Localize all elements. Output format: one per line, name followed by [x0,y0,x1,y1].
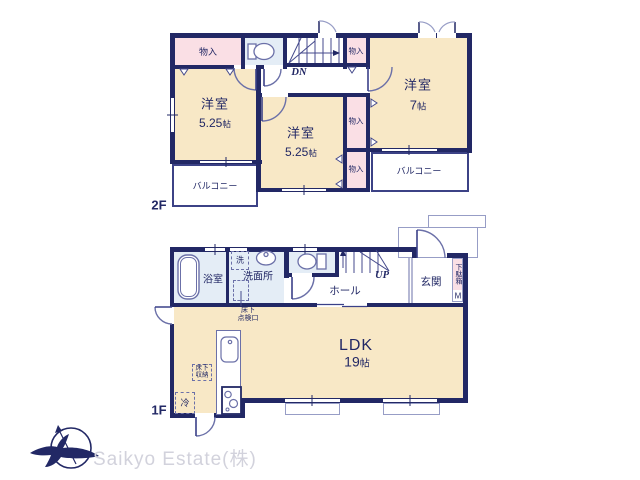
washing-machine-label: 洗 [236,255,244,264]
bathtub [178,255,199,299]
kitchen-sink [221,337,238,362]
ldk-name: LDK [339,337,373,355]
room-size: 5.25帖 [285,146,317,160]
stairs-2f [289,38,339,63]
ldk-sliding-door [317,305,367,307]
floor-plan: 2F 物入 物入 物入 物入 洋室 5.25帖 洋室 5.25帖 洋室 7帖 バ… [0,0,640,480]
entrance-step [409,258,412,303]
entrance-label: 玄関 [421,276,442,288]
stairs-dn-label: DN [291,67,306,79]
ldk-size: 19帖 [344,354,370,371]
room-size: 7帖 [410,99,427,114]
refrigerator-label: 冷 [180,398,189,408]
stairs-arrow-1f [340,249,346,256]
room-name: 洋室 [201,98,229,113]
washroom-label: 洗面所 [243,271,273,283]
closet-label: 物入 [349,118,364,127]
kitchen-stove [222,387,241,414]
room-name: 洋室 [404,79,432,94]
compass-icon [30,425,99,468]
company-watermark: Saikyo Estate(株) [93,444,257,471]
room-size-unit: 帖 [417,102,426,112]
underfloor-hatch-label: 床下 点検口 [238,307,259,323]
door-leaves-2f [256,67,368,121]
room-size-num: 5.25 [199,116,222,130]
balcony-label: バルコニー [193,181,238,191]
closet-label: 物入 [199,47,217,57]
toilet-1f [298,254,326,269]
room-size-unit: 帖 [222,119,231,129]
room-name: 洋室 [287,127,315,142]
balcony-label: バルコニー [397,166,442,176]
ldk-size-unit: 帖 [360,359,370,370]
shoe-cabinet-size-label: M [455,291,462,300]
hatch-line1: 床下 [238,307,259,315]
plan-linework [0,0,640,480]
stairs-up-label: UP [375,270,389,282]
room-size: 5.25帖 [199,117,231,131]
floor-label-1f: 1F [151,404,166,419]
hall-label: ホール [329,285,361,297]
casement-windows [319,21,455,33]
underfloor-storage-label: 床下 収納 [196,365,209,380]
room-size-unit: 帖 [308,148,317,158]
shoe-cabinet-label: 下駄箱 [454,264,462,285]
ldk-size-num: 19 [344,354,360,370]
bath-label: 浴室 [203,274,223,286]
wash-basin [257,251,276,265]
closet-label: 物入 [349,166,364,175]
room-size-num: 5.25 [285,145,308,159]
storage-line2: 収納 [196,372,209,379]
hatch-line2: 点検口 [238,315,259,323]
closet-label: 物入 [349,48,364,57]
toilet-2f [248,44,274,60]
floor-label-2f: 2F [151,199,166,214]
